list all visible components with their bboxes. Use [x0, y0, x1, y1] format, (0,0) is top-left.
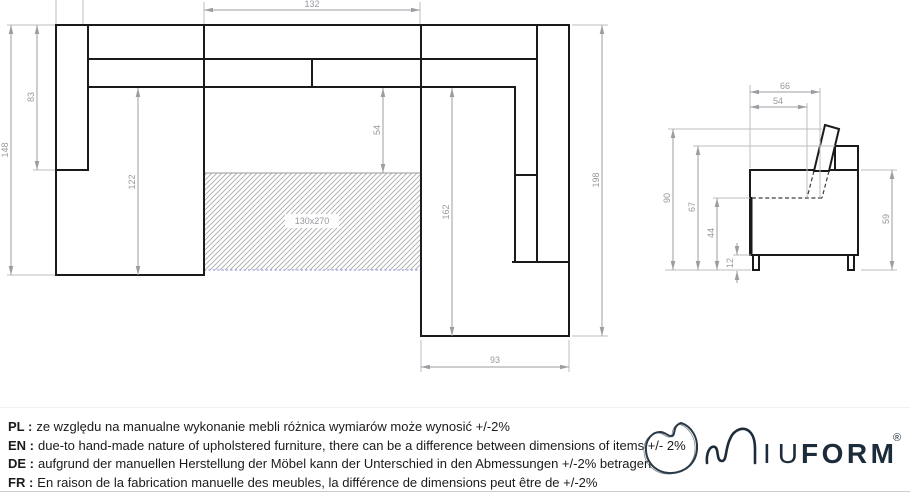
dim-height-seat: 44: [706, 198, 717, 270]
dim-label: 198: [591, 172, 601, 187]
brand-name-bold: FORM: [801, 438, 897, 469]
sofa-leg-front: [753, 255, 759, 270]
disclaimer-row-de: DE :aufgrund der manuellen Herstellung d…: [8, 455, 638, 474]
sofa-leg-back: [848, 255, 854, 270]
registered-trademark-icon: ®: [893, 432, 901, 444]
disclaimer-text: En raison de la fabrication manuelle des…: [37, 475, 597, 490]
dim-depth-seat: 54: [750, 96, 807, 107]
dim-height-total: 90: [662, 129, 673, 270]
dim-depth-right: 198: [591, 25, 602, 336]
disclaimer-row-en: EN :due-to hand-made nature of upholster…: [8, 437, 638, 456]
sleeping-area-label: 130x270: [295, 216, 330, 226]
dim-label: 90: [662, 193, 672, 203]
dim-seat-left: 122: [127, 88, 138, 275]
dim-label: 132: [304, 0, 319, 9]
dim-armrest-left: 83: [26, 25, 37, 170]
side-extension-lines: [665, 85, 897, 270]
language-label: DE :: [8, 456, 34, 471]
disclaimer-text: ze względu na manualne wykonanie mebli r…: [36, 419, 510, 434]
disclaimer-row-pl: PL :ze względu na manualne wykonanie meb…: [8, 418, 638, 437]
furniture-drawings: 130x270 132 148 83: [0, 0, 910, 406]
disclaimer-block: PL :ze względu na manualne wykonanie meb…: [8, 418, 638, 492]
dim-label: 83: [26, 92, 36, 102]
dim-seat-center: 54: [372, 88, 383, 173]
dim-label: 59: [881, 214, 891, 224]
cursive-m-glyph: [707, 429, 755, 463]
language-label: EN :: [8, 438, 34, 453]
miuform-logo: IU FORM ®: [643, 419, 910, 479]
dim-depth-left: 148: [0, 25, 11, 275]
disclaimer-text: due-to hand-made nature of upholstered f…: [38, 438, 686, 453]
dim-label: 162: [441, 204, 451, 219]
footer-top-divider: [0, 407, 910, 408]
dim-height-arm: 59: [881, 170, 892, 270]
dim-height-back: 67: [687, 146, 698, 270]
disclaimer-text: aufgrund der manuellen Herstellung der M…: [38, 456, 651, 471]
dim-depth-total: 66: [750, 81, 820, 92]
dim-label: 66: [780, 81, 790, 91]
sofa-side-outline: [750, 125, 858, 270]
dim-label: 54: [372, 125, 382, 135]
side-view: 66 54 90 67 44 12: [662, 81, 897, 283]
dim-label: 122: [127, 174, 137, 189]
footer-bottom-divider: [0, 491, 910, 492]
sleeping-area-hatch: 130x270: [204, 173, 421, 270]
dim-label: 54: [773, 96, 783, 106]
dim-label: 148: [0, 142, 10, 157]
brand-name-light: IU: [763, 438, 805, 469]
bean-icon: [644, 423, 697, 474]
dim-label: 12: [725, 258, 735, 268]
language-label: PL :: [8, 419, 32, 434]
dim-label: 67: [687, 202, 697, 212]
technical-drawing-sheet: 130x270 132 148 83: [0, 0, 910, 500]
dim-width-center: 132: [204, 0, 420, 10]
dim-label: 93: [490, 355, 500, 365]
language-label: FR :: [8, 475, 33, 490]
headrest-folded-dashed: [752, 171, 829, 198]
disclaimer-row-fr: FR :En raison de la fabrication manuelle…: [8, 474, 638, 493]
plan-view: 130x270 132 148 83: [0, 0, 608, 372]
dim-label: 44: [706, 228, 716, 238]
dim-height-legs: 12: [725, 243, 737, 283]
dim-width-right: 93: [421, 355, 569, 367]
dim-seat-right: 162: [441, 88, 452, 336]
